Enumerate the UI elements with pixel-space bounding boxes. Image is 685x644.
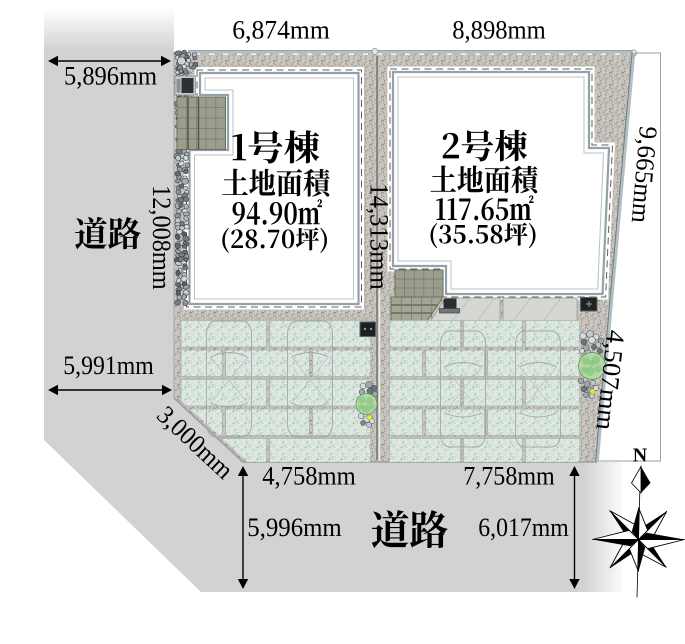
- svg-text:N: N: [633, 445, 648, 467]
- svg-text:12,008mm: 12,008mm: [147, 185, 176, 290]
- svg-text:7,758mm: 7,758mm: [463, 462, 555, 491]
- svg-text:9,665mm: 9,665mm: [626, 125, 663, 224]
- svg-text:5,896mm: 5,896mm: [64, 62, 157, 91]
- svg-text:14,313mm: 14,313mm: [364, 183, 393, 290]
- svg-text:6,017mm: 6,017mm: [478, 513, 569, 542]
- svg-text:6,874mm: 6,874mm: [232, 16, 330, 45]
- svg-text:8,898mm: 8,898mm: [452, 16, 546, 45]
- svg-text:4,758mm: 4,758mm: [262, 462, 356, 491]
- svg-text:5,996mm: 5,996mm: [247, 513, 342, 542]
- svg-text:5,991mm: 5,991mm: [63, 351, 154, 380]
